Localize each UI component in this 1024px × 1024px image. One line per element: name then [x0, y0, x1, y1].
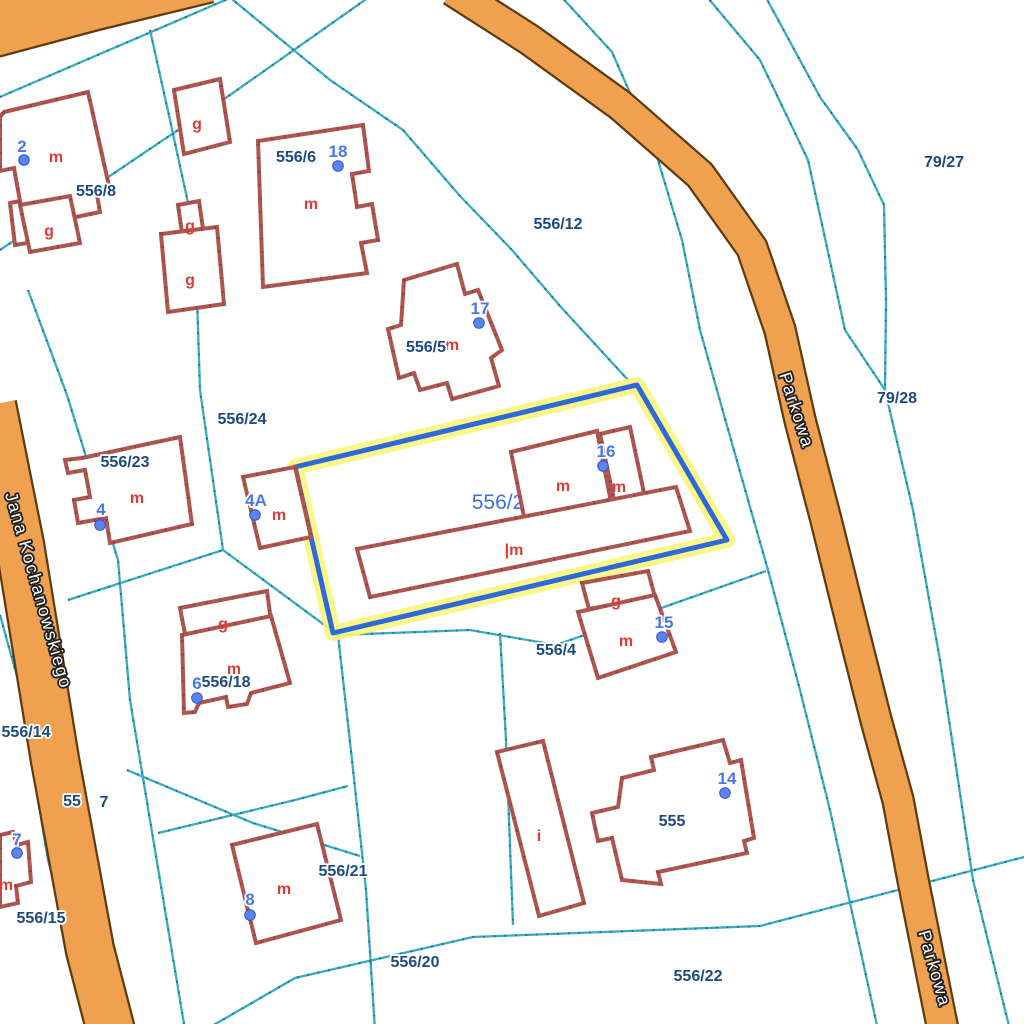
- selected-parcel-label[interactable]: 556/2: [472, 491, 525, 514]
- parcel-label-79-28[interactable]: 79/28: [877, 390, 917, 407]
- parcel-label-55[interactable]: 55: [63, 793, 81, 810]
- parcel-label-556-6[interactable]: 556/6: [276, 149, 316, 166]
- parcel-label-7[interactable]: 7: [100, 794, 109, 811]
- building-garage-north-1: [174, 79, 230, 154]
- address-point-number-4A[interactable]: 4A: [245, 491, 267, 510]
- building-type-letter: m: [556, 478, 570, 495]
- address-point-number-15[interactable]: 15: [655, 613, 674, 632]
- parcel-label-556-14[interactable]: 556/14: [2, 724, 51, 741]
- address-point-dot-18[interactable]: [333, 161, 344, 172]
- building-type-letter: m: [619, 633, 633, 650]
- parcel-label-556-24[interactable]: 556/24: [218, 411, 267, 428]
- parcel-label-79-27[interactable]: 79/27: [924, 154, 964, 171]
- address-point-dot-14[interactable]: [720, 788, 731, 799]
- parcel-label-556-5[interactable]: 556/5: [406, 339, 446, 356]
- address-point-number-17[interactable]: 17: [471, 299, 490, 318]
- parcel-label-556-12[interactable]: 556/12: [534, 216, 583, 233]
- cadastral-map-canvas[interactable]: 556/2mggggmmmmmm|mgmgmmim556/8556/6556/1…: [0, 0, 1024, 1024]
- address-point-number-8[interactable]: 8: [245, 890, 254, 909]
- address-point-number-14[interactable]: 14: [718, 769, 737, 788]
- cadastral-map-viewport[interactable]: 556/2mggggmmmmmm|mgmgmmim556/8556/6556/1…: [0, 0, 1024, 1024]
- building-type-letter: |m: [505, 542, 524, 559]
- building-type-letter: i: [537, 828, 541, 845]
- address-point-dot-4A[interactable]: [250, 510, 261, 521]
- building-type-letter: g: [185, 218, 195, 235]
- address-point-dot-8[interactable]: [245, 910, 256, 921]
- building-type-letter: g: [611, 593, 621, 610]
- address-point-number-7[interactable]: 7: [12, 830, 21, 849]
- building-type-letter: m: [49, 149, 63, 166]
- parcel-label-556-20[interactable]: 556/20: [391, 954, 440, 971]
- parcel-label-556-18[interactable]: 556/18: [202, 674, 251, 691]
- building-type-letter: m: [130, 490, 144, 507]
- address-point-dot-15[interactable]: [657, 632, 668, 643]
- parcel-label-556-4[interactable]: 556/4: [536, 642, 576, 659]
- parcel-label-556-23[interactable]: 556/23: [101, 454, 150, 471]
- building-type-letter: g: [192, 116, 202, 133]
- address-point-number-4[interactable]: 4: [96, 500, 106, 519]
- parcel-label-556-8[interactable]: 556/8: [76, 183, 116, 200]
- building-type-letter: m: [445, 337, 459, 354]
- parcel-label-556-15[interactable]: 556/15: [17, 910, 66, 927]
- building-type-letter: g: [185, 272, 195, 289]
- address-point-dot-16[interactable]: [598, 461, 609, 472]
- address-point-dot-7[interactable]: [12, 848, 23, 859]
- parcel-label-556-21[interactable]: 556/21: [319, 863, 368, 880]
- building-type-letter: m: [304, 196, 318, 213]
- building-type-letter: m: [277, 881, 291, 898]
- address-point-number-2[interactable]: 2: [17, 137, 26, 156]
- building-type-letter: g: [44, 223, 54, 240]
- parcel-label-556-22[interactable]: 556/22: [674, 968, 723, 985]
- building-type-letter: g: [218, 616, 228, 633]
- address-point-number-18[interactable]: 18: [329, 142, 348, 161]
- address-point-dot-6[interactable]: [192, 693, 203, 704]
- address-point-number-16[interactable]: 16: [597, 442, 616, 461]
- building-type-letter: m: [272, 507, 286, 524]
- building-type-letter: m: [0, 877, 13, 894]
- address-point-dot-2[interactable]: [19, 155, 30, 166]
- address-point-dot-17[interactable]: [474, 318, 485, 329]
- building-type-letter: m: [612, 479, 626, 496]
- building-garage-north-3: [161, 227, 224, 312]
- address-point-dot-4[interactable]: [95, 520, 106, 531]
- address-point-number-6[interactable]: 6: [192, 674, 201, 693]
- parcel-label-555[interactable]: 555: [659, 813, 686, 830]
